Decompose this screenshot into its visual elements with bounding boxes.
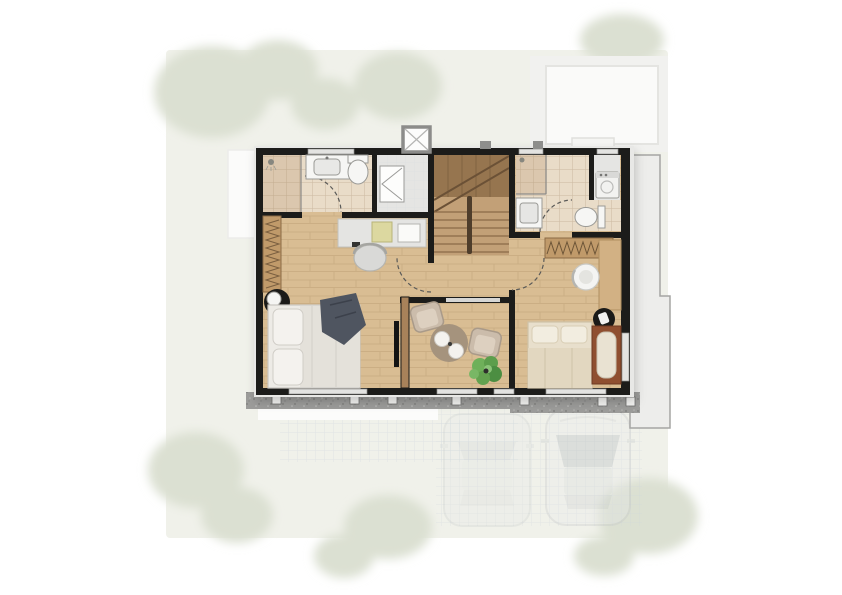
terrace-grid: [280, 420, 518, 462]
duvet: [528, 348, 592, 388]
tv-wall-panel: [401, 297, 409, 388]
post: [520, 396, 529, 405]
floor-plan: [254, 127, 634, 397]
laptop-icon: [398, 224, 420, 242]
roof-block-top-right: [530, 56, 668, 152]
bed-master: [268, 293, 366, 388]
pillow: [273, 349, 303, 385]
wall-niche: [589, 154, 594, 200]
bed-bedroom-2: [528, 322, 592, 388]
window: [597, 149, 618, 154]
tree-icon: [574, 536, 634, 576]
plant-pot: [484, 369, 489, 374]
window: [437, 389, 477, 394]
pillow: [273, 309, 303, 345]
window: [494, 389, 514, 394]
armchair: [468, 327, 503, 359]
wall-stair-right: [509, 148, 515, 238]
wall-closet: [372, 148, 377, 212]
wall-bump: [480, 141, 491, 149]
book-icon: [372, 222, 392, 242]
showerhead-icon: [268, 159, 274, 165]
car-2-icon: [541, 409, 635, 525]
wall-stair-left: [428, 148, 434, 263]
tree-icon: [354, 52, 442, 120]
toilet-icon: [348, 160, 368, 184]
window: [546, 389, 606, 394]
tree-icon: [314, 534, 374, 578]
rug-center-dot: [448, 342, 452, 346]
window: [622, 333, 629, 381]
tree-icon: [201, 487, 273, 543]
toilet-icon: [575, 208, 597, 227]
interior-window: [446, 298, 500, 302]
window: [308, 149, 354, 154]
sink-icon: [520, 203, 538, 223]
sink-icon: [314, 159, 340, 175]
wall-left: [256, 148, 263, 395]
wall-bump: [533, 141, 543, 149]
bench-cushion: [597, 332, 616, 378]
wall-bath2-bottom-a: [509, 232, 540, 238]
tree-icon: [291, 78, 359, 130]
tv-icon: [394, 321, 399, 367]
showerhead-icon: [520, 158, 525, 163]
window: [289, 389, 367, 394]
window: [519, 149, 543, 154]
post: [452, 396, 461, 405]
wall-bath1-b: [342, 212, 434, 218]
side-ledge-left: [228, 150, 256, 238]
wall-bath2-bottom-b: [572, 232, 630, 238]
pillow: [561, 326, 587, 343]
pouf: [435, 332, 450, 347]
post: [598, 397, 607, 406]
washing-machine-icon: [596, 172, 619, 198]
lamp-icon: [267, 292, 281, 306]
round-chair-bedroom-2: [573, 264, 599, 290]
desk-chair: [354, 245, 386, 271]
roof-white-rect: [546, 66, 658, 144]
floor-plan-svg: [0, 0, 842, 595]
bench-daybed: [592, 326, 621, 384]
wardrobe-master: [263, 216, 281, 292]
terrace-white-band: [258, 408, 438, 420]
vent-shaft-icon: [403, 127, 430, 152]
stair-railing: [467, 196, 472, 254]
pillow: [532, 326, 558, 343]
faucet-icon: [326, 157, 329, 160]
post: [626, 397, 635, 406]
wall-bedroom2-left: [509, 290, 515, 388]
closet-bifold-doors: [380, 166, 404, 202]
toilet-tank: [598, 206, 605, 228]
floor-plan-canvas: [0, 0, 842, 595]
staircase: [434, 153, 509, 255]
desk-bedroom-2: [599, 240, 621, 310]
